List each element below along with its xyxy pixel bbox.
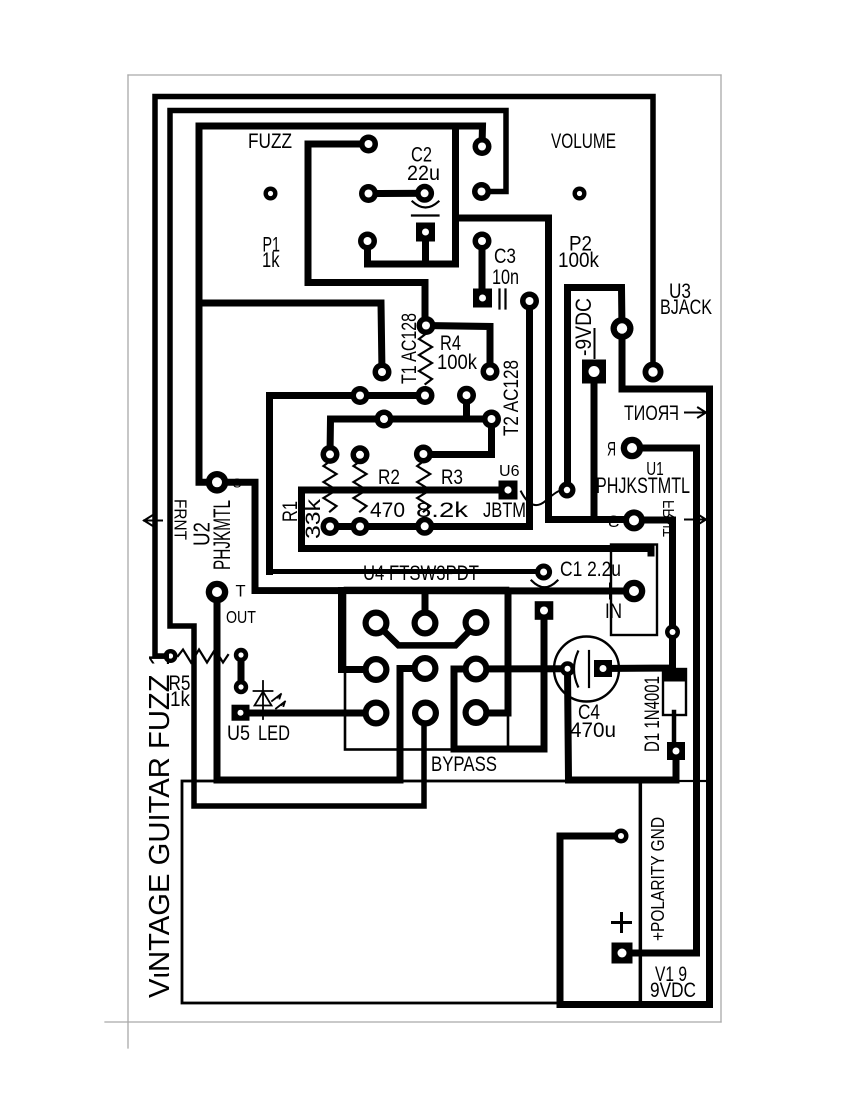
svg-text:BYPASS: BYPASS: [431, 753, 497, 776]
svg-text:FRNT: FRNT: [171, 499, 191, 540]
svg-text:VιNTAGE GUITAR FUZZ 1: VιNTAGE GUITAR FUZZ 1: [144, 650, 176, 998]
svg-text:PHJKSTMTL: PHJKSTMTL: [596, 473, 690, 498]
svg-text:U4 FTSW3PDT: U4 FTSW3PDT: [363, 562, 479, 585]
svg-text:-9VDC: -9VDC: [571, 298, 596, 356]
svg-text:U6: U6: [499, 463, 520, 480]
svg-text:FRONT: FRONT: [624, 402, 679, 425]
svg-text:R3: R3: [441, 466, 463, 489]
svg-text:1k: 1k: [262, 249, 280, 272]
svg-text:+POLARITY GND: +POLARITY GND: [648, 817, 668, 941]
svg-text:FRNT: FRNT: [661, 500, 678, 537]
svg-text:PHJKMTL: PHJKMTL: [209, 500, 236, 570]
svg-text:8.2k: 8.2k: [416, 499, 469, 522]
svg-text:JBTM: JBTM: [483, 499, 526, 522]
svg-text:VOLUME: VOLUME: [551, 130, 616, 153]
svg-text:100k: 100k: [558, 249, 599, 272]
svg-text:R1: R1: [279, 501, 302, 522]
svg-text:470: 470: [370, 499, 405, 522]
svg-text:100k: 100k: [437, 351, 477, 374]
svg-text:10n: 10n: [492, 266, 519, 289]
svg-text:33k: 33k: [302, 498, 325, 539]
svg-text:D1 1N4001: D1 1N4001: [641, 676, 664, 752]
svg-text:R2: R2: [378, 466, 400, 489]
svg-text:OUT: OUT: [226, 607, 256, 627]
svg-text:S: S: [233, 476, 242, 491]
svg-text:U5: U5: [227, 722, 250, 745]
svg-text:9VDC: 9VDC: [650, 979, 696, 1002]
svg-text:C1 2.2u: C1 2.2u: [560, 558, 621, 581]
svg-text:22u: 22u: [407, 162, 440, 185]
svg-text:IN: IN: [605, 600, 622, 623]
svg-text:FUZZ: FUZZ: [248, 130, 292, 153]
svg-text:BJACK: BJACK: [660, 296, 712, 319]
svg-text:470u: 470u: [570, 719, 616, 742]
svg-text:T2 AC128: T2 AC128: [500, 360, 523, 436]
svg-text:C3: C3: [494, 245, 516, 268]
svg-text:T: T: [236, 583, 246, 601]
svg-text:S: S: [608, 512, 619, 531]
svg-text:T1 AC128: T1 AC128: [398, 313, 421, 384]
svg-text:LED: LED: [258, 722, 290, 745]
svg-text:R: R: [607, 440, 616, 461]
